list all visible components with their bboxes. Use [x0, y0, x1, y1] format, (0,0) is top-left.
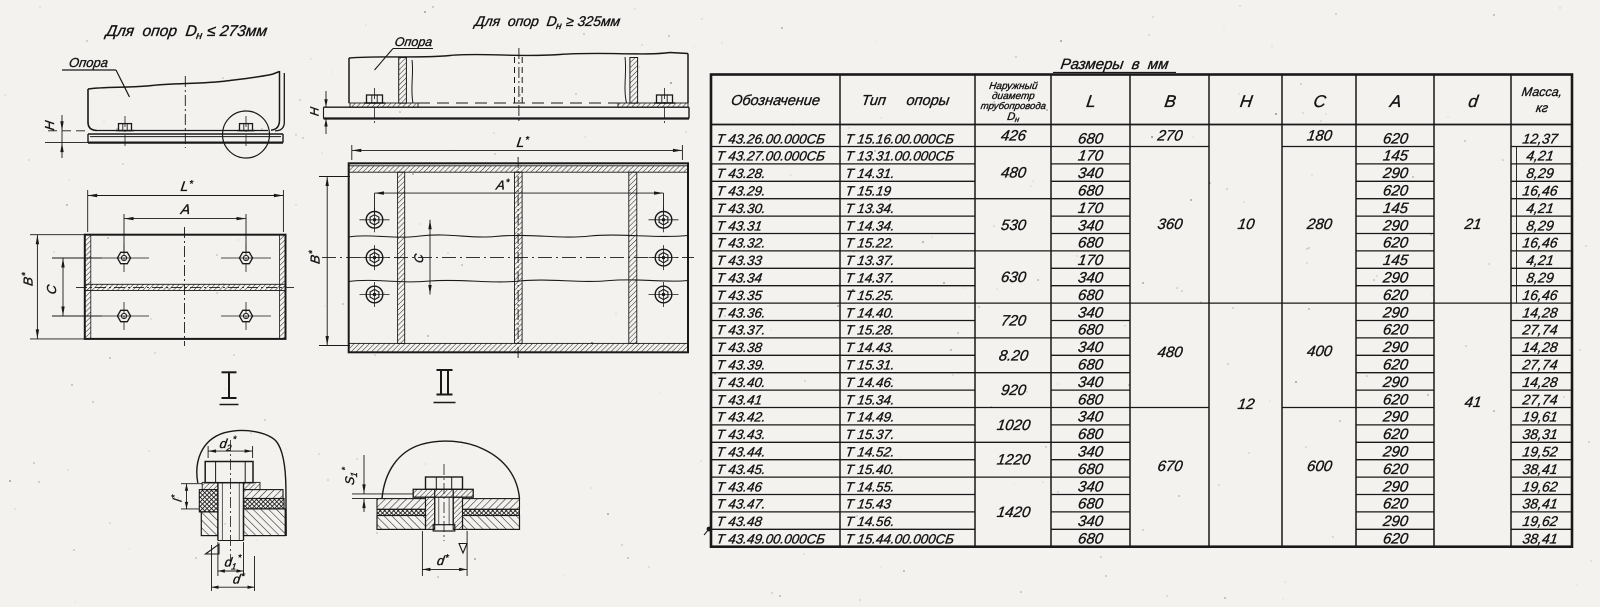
svg-text:480: 480 — [1000, 165, 1028, 182]
svg-text:Т 43.32.: Т 43.32. — [716, 236, 767, 251]
svg-text:Обозначение: Обозначение — [730, 93, 821, 109]
svg-text:145: 145 — [1382, 252, 1410, 269]
svg-text:опоры: опоры — [905, 93, 950, 109]
svg-text:620: 620 — [1382, 426, 1410, 443]
svg-text:340: 340 — [1077, 270, 1105, 287]
svg-text:d2*: d2* — [218, 434, 237, 453]
svg-text:8,29: 8,29 — [1525, 217, 1555, 233]
svg-text:360: 360 — [1156, 216, 1184, 233]
svg-text:кг: кг — [1535, 101, 1549, 115]
svg-text:Т 43.45.: Т 43.45. — [716, 462, 767, 477]
svg-text:620: 620 — [1382, 357, 1410, 374]
svg-text:340: 340 — [1077, 409, 1105, 426]
svg-text:145: 145 — [1382, 200, 1410, 217]
svg-text:16,46: 16,46 — [1522, 183, 1559, 199]
svg-text:290: 290 — [1381, 304, 1410, 321]
svg-text:620: 620 — [1382, 531, 1410, 548]
svg-text:Т 15.31.: Т 15.31. — [845, 358, 896, 373]
svg-text:Размеры в мм: Размеры в мм — [1060, 56, 1171, 73]
svg-text:Т 14.52.: Т 14.52. — [845, 445, 896, 460]
svg-text:680: 680 — [1077, 183, 1105, 200]
svg-text:Масса,: Масса, — [1521, 85, 1563, 99]
svg-text:290: 290 — [1381, 217, 1410, 234]
svg-text:290: 290 — [1381, 444, 1410, 461]
svg-text:530: 530 — [1000, 217, 1028, 234]
svg-text:680: 680 — [1077, 461, 1105, 478]
svg-text:A: A — [1388, 92, 1403, 111]
svg-text:Т 43.34: Т 43.34 — [716, 271, 763, 286]
svg-text:27,74: 27,74 — [1521, 391, 1559, 407]
svg-text:Т 43.47.: Т 43.47. — [716, 497, 767, 512]
svg-text:620: 620 — [1382, 130, 1410, 147]
svg-text:Т 43.48: Т 43.48 — [716, 514, 764, 529]
svg-text:Т 43.30.: Т 43.30. — [716, 201, 767, 216]
svg-text:Опора: Опора — [394, 35, 433, 49]
svg-text:Т 14.49.: Т 14.49. — [845, 410, 896, 425]
svg-text:720: 720 — [1000, 313, 1028, 330]
svg-text:14,28: 14,28 — [1522, 304, 1559, 320]
svg-text:1420: 1420 — [996, 504, 1032, 521]
svg-text:12,37: 12,37 — [1522, 130, 1560, 146]
svg-text:620: 620 — [1382, 496, 1410, 513]
svg-text:Т 43.39.: Т 43.39. — [716, 358, 767, 373]
svg-text:d*: d* — [436, 553, 450, 568]
svg-text:S1*: S1* — [340, 466, 359, 486]
svg-text:Т 15.22.: Т 15.22. — [845, 236, 896, 251]
svg-text:4,21: 4,21 — [1525, 200, 1554, 216]
svg-text:B*: B* — [21, 271, 36, 287]
svg-text:Т 15.16.00.000СБ: Т 15.16.00.000СБ — [845, 131, 956, 146]
svg-text:Т 14.40.: Т 14.40. — [845, 305, 896, 320]
svg-text:620: 620 — [1382, 235, 1410, 252]
svg-text:H: H — [308, 106, 322, 117]
svg-text:A: A — [179, 201, 192, 217]
svg-text:290: 290 — [1381, 270, 1410, 287]
svg-text:27,74: 27,74 — [1521, 322, 1559, 338]
svg-text:L*: L* — [180, 178, 195, 194]
svg-text:C: C — [412, 252, 426, 264]
svg-text:630: 630 — [1000, 269, 1028, 286]
svg-text:38,31: 38,31 — [1522, 426, 1559, 442]
svg-text:340: 340 — [1077, 339, 1105, 356]
svg-text:38,41: 38,41 — [1522, 496, 1559, 512]
svg-text:340: 340 — [1077, 304, 1105, 321]
svg-text:340: 340 — [1077, 374, 1105, 391]
svg-text:680: 680 — [1077, 322, 1105, 339]
svg-text:Т 15.40.: Т 15.40. — [845, 462, 896, 477]
svg-text:Т 15.43: Т 15.43 — [845, 497, 893, 512]
svg-text:145: 145 — [1382, 148, 1410, 165]
svg-text:600: 600 — [1306, 458, 1334, 475]
svg-text:Т 14.43.: Т 14.43. — [845, 340, 896, 355]
svg-text:16,46: 16,46 — [1522, 235, 1559, 251]
svg-text:400: 400 — [1306, 343, 1334, 360]
svg-text:Для опор Dн ≥ 325мм: Для опор Dн ≥ 325мм — [472, 13, 622, 32]
svg-text:620: 620 — [1382, 322, 1410, 339]
svg-text:16,46: 16,46 — [1522, 287, 1559, 303]
svg-text:Для опор Dн ≤ 273мм: Для опор Dн ≤ 273мм — [103, 23, 269, 42]
svg-text:Т 43.31: Т 43.31 — [716, 218, 763, 233]
svg-text:Тип: Тип — [860, 93, 887, 109]
svg-text:680: 680 — [1077, 235, 1105, 252]
svg-text:340: 340 — [1077, 513, 1105, 530]
svg-text:H: H — [1239, 92, 1255, 111]
svg-text:d: d — [1467, 92, 1480, 111]
svg-text:38,41: 38,41 — [1522, 531, 1559, 547]
svg-text:670: 670 — [1156, 458, 1184, 475]
svg-text:Т 43.44.: Т 43.44. — [716, 445, 767, 460]
svg-text:340: 340 — [1077, 165, 1105, 182]
svg-text:d1*: d1* — [223, 553, 242, 572]
svg-text:Т 13.37.: Т 13.37. — [845, 253, 896, 268]
svg-text:19,61: 19,61 — [1522, 409, 1559, 425]
svg-text:Т 15.19: Т 15.19 — [845, 184, 893, 199]
svg-text:680: 680 — [1077, 496, 1105, 513]
svg-text:19,62: 19,62 — [1522, 513, 1559, 529]
svg-text:480: 480 — [1156, 344, 1184, 361]
svg-text:340: 340 — [1077, 444, 1105, 461]
svg-text:Опора: Опора — [68, 55, 109, 70]
svg-text:Т 15.44.00.000СБ: Т 15.44.00.000СБ — [845, 532, 956, 547]
svg-text:270: 270 — [1155, 128, 1184, 145]
svg-text:19,52: 19,52 — [1522, 444, 1559, 460]
svg-text:620: 620 — [1382, 183, 1410, 200]
svg-text:41: 41 — [1464, 394, 1483, 411]
svg-text:680: 680 — [1077, 426, 1105, 443]
svg-text:426: 426 — [1000, 128, 1028, 145]
svg-text:Т 15.34.: Т 15.34. — [845, 392, 896, 407]
svg-text:Т 43.28.: Т 43.28. — [716, 166, 767, 181]
svg-text:180: 180 — [1306, 128, 1334, 145]
svg-text:Т 43.33: Т 43.33 — [716, 253, 764, 268]
svg-text:170: 170 — [1077, 252, 1105, 269]
svg-text:A*: A* — [494, 178, 511, 193]
svg-text:Т 13.34.: Т 13.34. — [845, 201, 896, 216]
svg-text:l*: l* — [170, 494, 185, 503]
svg-text:620: 620 — [1382, 461, 1410, 478]
svg-text:Т 43.26.00.000СБ: Т 43.26.00.000СБ — [716, 131, 827, 146]
svg-text:Т 43.43.: Т 43.43. — [716, 427, 767, 442]
svg-text:C: C — [44, 283, 59, 295]
svg-text:Т 43.38: Т 43.38 — [716, 340, 764, 355]
svg-text:Т 15.28.: Т 15.28. — [845, 323, 896, 338]
svg-text:680: 680 — [1077, 391, 1105, 408]
svg-text:14,28: 14,28 — [1522, 374, 1559, 390]
svg-text:Т 43.37.: Т 43.37. — [716, 323, 767, 338]
svg-text:d*: d* — [232, 572, 246, 587]
svg-text:290: 290 — [1381, 478, 1410, 495]
svg-text:Т 14.34.: Т 14.34. — [845, 218, 896, 233]
svg-text:620: 620 — [1382, 287, 1410, 304]
svg-text:H: H — [42, 119, 57, 131]
svg-text:B: B — [1163, 92, 1177, 111]
svg-text:Т 14.46.: Т 14.46. — [845, 375, 896, 390]
svg-text:340: 340 — [1077, 478, 1105, 495]
svg-text:Т 14.37.: Т 14.37. — [845, 271, 896, 286]
svg-text:14,28: 14,28 — [1522, 339, 1559, 355]
svg-text:10: 10 — [1237, 216, 1257, 233]
svg-text:Т 14.55.: Т 14.55. — [845, 479, 896, 494]
svg-text:Т 14.31.: Т 14.31. — [845, 166, 896, 181]
svg-text:Т 15.37.: Т 15.37. — [845, 427, 896, 442]
svg-text:12: 12 — [1237, 396, 1257, 413]
svg-text:290: 290 — [1381, 374, 1410, 391]
svg-text:280: 280 — [1305, 216, 1334, 233]
svg-text:1220: 1220 — [996, 452, 1032, 469]
svg-text:38,41: 38,41 — [1522, 461, 1559, 477]
svg-text:8,29: 8,29 — [1525, 165, 1555, 181]
svg-text:Т 43.41: Т 43.41 — [716, 392, 763, 407]
svg-text:Т 43.27.00.000СБ: Т 43.27.00.000СБ — [716, 149, 827, 164]
svg-text:Т 43.36.: Т 43.36. — [716, 305, 767, 320]
svg-text:290: 290 — [1381, 165, 1410, 182]
svg-text:Т 15.25.: Т 15.25. — [845, 288, 896, 303]
svg-text:170: 170 — [1077, 148, 1105, 165]
svg-text:21: 21 — [1463, 216, 1483, 233]
svg-text:B*: B* — [308, 249, 323, 265]
svg-text:27,74: 27,74 — [1521, 357, 1559, 373]
svg-text:8.20: 8.20 — [998, 347, 1030, 364]
svg-text:4,21: 4,21 — [1525, 252, 1554, 268]
svg-text:290: 290 — [1381, 339, 1410, 356]
svg-text:620: 620 — [1382, 391, 1410, 408]
svg-text:Т 43.35: Т 43.35 — [716, 288, 764, 303]
svg-text:19,62: 19,62 — [1522, 478, 1559, 494]
svg-text:920: 920 — [1000, 382, 1028, 399]
svg-text:680: 680 — [1077, 357, 1105, 374]
svg-text:680: 680 — [1077, 531, 1105, 548]
svg-text:680: 680 — [1077, 287, 1105, 304]
svg-text:Т 43.49.00.000СБ: Т 43.49.00.000СБ — [716, 532, 827, 547]
svg-text:Т 43.29.: Т 43.29. — [716, 184, 767, 199]
svg-text:L: L — [1085, 92, 1097, 111]
svg-text:Т 14.56.: Т 14.56. — [845, 514, 896, 529]
svg-text:1020: 1020 — [996, 417, 1032, 434]
svg-text:Т 43.42.: Т 43.42. — [716, 410, 767, 425]
svg-text:170: 170 — [1077, 200, 1105, 217]
svg-text:Dн: Dн — [1006, 111, 1021, 124]
svg-text:C: C — [1312, 92, 1328, 111]
svg-text:290: 290 — [1381, 409, 1410, 426]
svg-text:Т 43.46: Т 43.46 — [716, 479, 764, 494]
svg-text:Т 43.40.: Т 43.40. — [716, 375, 767, 390]
svg-text:4,21: 4,21 — [1525, 148, 1554, 164]
svg-text:L*: L* — [516, 134, 531, 150]
svg-text:680: 680 — [1077, 130, 1105, 147]
svg-text:Т 13.31.00.000СБ: Т 13.31.00.000СБ — [845, 149, 956, 164]
svg-text:8,29: 8,29 — [1525, 270, 1555, 286]
svg-text:340: 340 — [1077, 217, 1105, 234]
svg-text:290: 290 — [1381, 513, 1410, 530]
